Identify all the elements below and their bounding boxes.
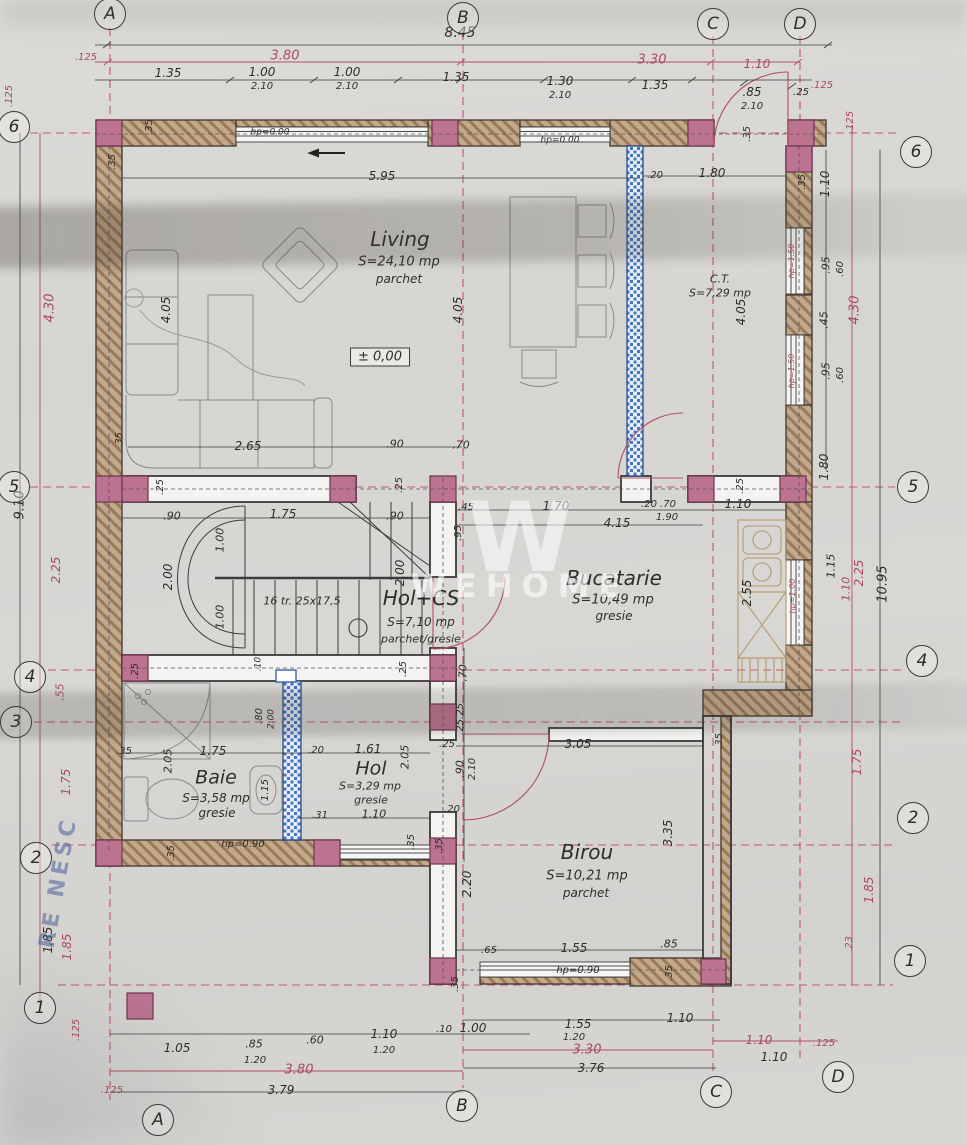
dim-label: 4.05 [452, 297, 464, 324]
dim-label: 3.30 [638, 54, 667, 67]
dim-label: 1.20 [563, 1033, 585, 1043]
dim-label: 2.55 [741, 580, 753, 607]
dim-label: hp=0.90 [221, 840, 264, 850]
room-name-holcs: Hol+CS [383, 588, 460, 608]
dim-label: .35 [407, 834, 417, 850]
dim-label: 4.05 [735, 299, 747, 326]
dim-label: 1.75 [60, 769, 72, 796]
grid-bubble-3: 3 [0, 706, 32, 738]
grid-bubble-1: 1 [894, 945, 926, 977]
dim-label: 1.35 [642, 79, 669, 91]
dim-label: 1.20 [244, 1056, 266, 1066]
dim-label: .55 [55, 683, 66, 701]
dim-label: 1.85 [863, 877, 875, 904]
dim-label: .25 [439, 740, 455, 750]
room-area-holcs: S=7,10 mp [387, 616, 455, 628]
dim-label: .70 [458, 664, 469, 682]
grid-bubble-4: 4 [14, 661, 46, 693]
dim-label: 4.30 [44, 294, 57, 323]
dim-label: .90 [455, 760, 466, 778]
dim-label: .60 [306, 1035, 324, 1046]
dim-label: .90 [163, 511, 181, 522]
dim-label: .20 [308, 746, 324, 756]
dim-label: 1.05 [164, 1042, 191, 1054]
dim-label: 1.00 [215, 605, 226, 630]
dim-label: .35 [167, 845, 177, 861]
dim-label: 2.20 [461, 871, 473, 898]
dim-label: 1.15 [826, 554, 837, 579]
dim-label: .125 [5, 85, 15, 107]
dim-label: 1.35 [443, 71, 470, 83]
dim-label: .125 [72, 1019, 82, 1041]
dim-label: .45 [819, 311, 830, 329]
grid-bubble-6: 6 [0, 111, 30, 143]
room-area-bucatarie: S=10,49 mp [572, 594, 653, 607]
dim-label: .70 [660, 500, 676, 510]
dim-label: .125 [75, 53, 97, 63]
dim-label: 2.00 [268, 709, 277, 729]
dim-label: .35 [116, 747, 132, 757]
dim-label: 2.10 [336, 82, 358, 92]
dim-label: 3.80 [271, 50, 300, 63]
dim-label: .35 [798, 174, 808, 190]
dim-label: .20 [647, 171, 663, 181]
dim-label: .80 [255, 708, 265, 724]
room-area-living: S=24,10 mp [358, 256, 439, 269]
dim-label: 3.80 [285, 1064, 314, 1077]
dim-label: .125 [813, 1039, 835, 1049]
dim-label: .25 [399, 661, 409, 677]
dim-label: 2.25 [853, 560, 865, 587]
dim-label: .23 [845, 936, 855, 952]
dim-label: 2.10 [549, 91, 571, 101]
dim-label: .35 [665, 965, 675, 981]
dim-label: 3.05 [565, 738, 592, 750]
grid-bubble-B: B [447, 2, 479, 34]
dim-label: hp=1.00 [789, 579, 797, 614]
dim-label: .45 [458, 503, 474, 513]
dim-label: 2.05 [163, 749, 174, 774]
room-name-ct: C.T. [710, 274, 730, 285]
room-name-birou: Birou [561, 842, 613, 862]
dim-label: 1.75 [270, 508, 297, 520]
dim-label: .25 [395, 477, 405, 493]
room-area-ct: S=7,29 mp [689, 288, 751, 299]
dim-label: 1.10 [744, 58, 771, 70]
dim-label: 2.65 [235, 440, 262, 452]
room-area-birou: S=10,21 mp [546, 870, 627, 883]
dim-label: hp=0.00 [251, 129, 290, 138]
dim-label: .25 [456, 703, 466, 719]
dim-label: .35 [145, 119, 155, 135]
dim-label: .35 [115, 432, 125, 448]
grid-bubble-D: D [822, 1061, 854, 1093]
grid-bubble-2: 2 [897, 802, 929, 834]
dim-label: .31 [312, 811, 328, 821]
dim-label: 2.00 [394, 560, 406, 587]
dim-label: .95 [821, 256, 832, 274]
dim-label: 1.75 [200, 745, 227, 757]
dim-label: 1.10 [667, 1012, 694, 1024]
dim-label: 1.55 [565, 1018, 592, 1030]
room-area-hol: S=3,29 mp [339, 781, 401, 792]
grid-bubble-5: 5 [897, 471, 929, 503]
dim-label: 1.90 [656, 513, 678, 523]
dim-label: 1.10 [761, 1051, 788, 1063]
dim-label: .90 [386, 439, 404, 450]
dim-label: 1.55 [561, 942, 588, 954]
room-name-hol: Hol [355, 760, 386, 779]
dim-label: .95 [454, 525, 464, 541]
dim-label: 1.70 [543, 500, 570, 512]
dim-label: .35 [451, 976, 461, 992]
dim-label: 1.00 [460, 1022, 487, 1034]
dim-label: .20 [444, 805, 460, 815]
dim-label: .125 [101, 1086, 123, 1096]
dim-label: .35 [435, 838, 445, 854]
room-floor-birou: parchet [563, 887, 609, 899]
dim-label: .90 [386, 511, 404, 522]
dim-label: .85 [245, 1039, 263, 1050]
dim-label: 1.10 [746, 1034, 773, 1046]
dim-label: 2.10 [741, 102, 763, 112]
dim-label: .60 [836, 367, 846, 383]
dim-label: 1.20 [373, 1046, 395, 1056]
grid-bubble-C: C [697, 8, 729, 40]
room-area-baie: S=3,58 mp [182, 792, 250, 804]
dim-label: 1.00 [334, 66, 361, 78]
dim-label: 1.10 [841, 577, 852, 602]
dim-label: 2.10 [251, 82, 273, 92]
stairs-note: 16 tr. 25x17,5 [263, 596, 340, 607]
dim-label: hp=1.50 [788, 354, 796, 389]
dim-label: 3.79 [268, 1084, 295, 1096]
dim-label: 1.80 [818, 454, 830, 481]
grid-bubble-A: A [94, 0, 126, 30]
dim-label: .10 [436, 1025, 452, 1035]
dim-label: 4.05 [160, 297, 172, 324]
dim-label: .25 [131, 663, 141, 679]
dim-label: .85 [660, 939, 678, 950]
dim-label: 1.85 [61, 934, 73, 961]
dim-label: 1.35 [155, 67, 182, 79]
dim-label: .35 [743, 126, 753, 142]
room-floor-living: parchet [376, 273, 422, 285]
dim-label: 2.25 [50, 557, 62, 584]
room-name-living: Living [370, 229, 429, 249]
dim-label: 3.76 [578, 1062, 605, 1074]
dim-label: 1.30 [547, 75, 574, 87]
room-floor-holcs: parchet/gresie [381, 634, 461, 645]
dim-label: 4.30 [849, 296, 862, 325]
dim-label: 2.00 [162, 564, 174, 591]
dim-label: .95 [821, 362, 832, 380]
dim-label: hp=0.90 [556, 966, 599, 976]
dim-label: hp=1.50 [788, 244, 796, 279]
dim-label: .20 [641, 500, 657, 510]
dim-label: 1.61 [355, 743, 382, 755]
grid-bubble-6: 6 [900, 136, 932, 168]
grid-bubble-C: C [700, 1076, 732, 1108]
dim-label: .25 [456, 719, 466, 735]
dim-label: 3.35 [662, 820, 674, 847]
grid-bubble-D: D [784, 8, 816, 40]
dim-label: 1.10 [819, 171, 831, 198]
dim-label: 5.95 [369, 170, 396, 182]
floor-plan-photo: 8.453.803.301.10.125.1251.351.002.101.00… [0, 0, 967, 1145]
dim-label: 1.10 [725, 498, 752, 510]
dim-label: 2.10 [468, 758, 478, 780]
room-floor-hol: gresie [354, 795, 388, 806]
room-floor-baie: gresie [199, 807, 236, 819]
room-name-bucatarie: Bucatarie [566, 568, 662, 588]
grid-bubble-1: 1 [24, 992, 56, 1024]
grid-bubble-B: B [446, 1090, 478, 1122]
grid-bubble-4: 4 [906, 645, 938, 677]
dim-label: .25 [736, 478, 746, 494]
dim-label: 1.75 [851, 749, 863, 776]
dim-label: .70 [452, 440, 470, 451]
dim-label: 1.15 [261, 779, 271, 801]
dim-label: .35 [715, 733, 725, 749]
level-mark: ± 0,00 [350, 348, 410, 367]
dim-label: 1.00 [249, 66, 276, 78]
dim-label: 1.80 [699, 167, 726, 179]
dim-label: .125 [811, 81, 833, 91]
dim-label: hp=0.00 [541, 137, 580, 146]
room-floor-bucatarie: gresie [596, 610, 633, 622]
dim-label: 4.15 [604, 517, 631, 529]
labels-layer: 8.453.803.301.10.125.1251.351.002.101.00… [0, 0, 967, 1145]
dim-label: 3.30 [573, 1044, 602, 1057]
dim-label: .65 [481, 946, 497, 956]
dim-label: 2.05 [400, 745, 411, 770]
dim-label: 1.10 [362, 809, 387, 820]
dim-label: 1.00 [215, 528, 226, 553]
dim-label: .10 [255, 657, 264, 671]
dim-label: .35 [108, 154, 118, 170]
grid-bubble-A: A [142, 1104, 174, 1136]
dim-label: .125 [846, 111, 856, 133]
room-name-baie: Baie [195, 769, 237, 788]
dim-label: .60 [836, 261, 846, 277]
dim-label: .25 [156, 479, 166, 495]
dim-label: .85 [742, 86, 761, 98]
dim-label: 1.10 [371, 1028, 398, 1040]
dim-label: .25 [793, 88, 809, 98]
dim-label: 10.95 [877, 565, 890, 602]
